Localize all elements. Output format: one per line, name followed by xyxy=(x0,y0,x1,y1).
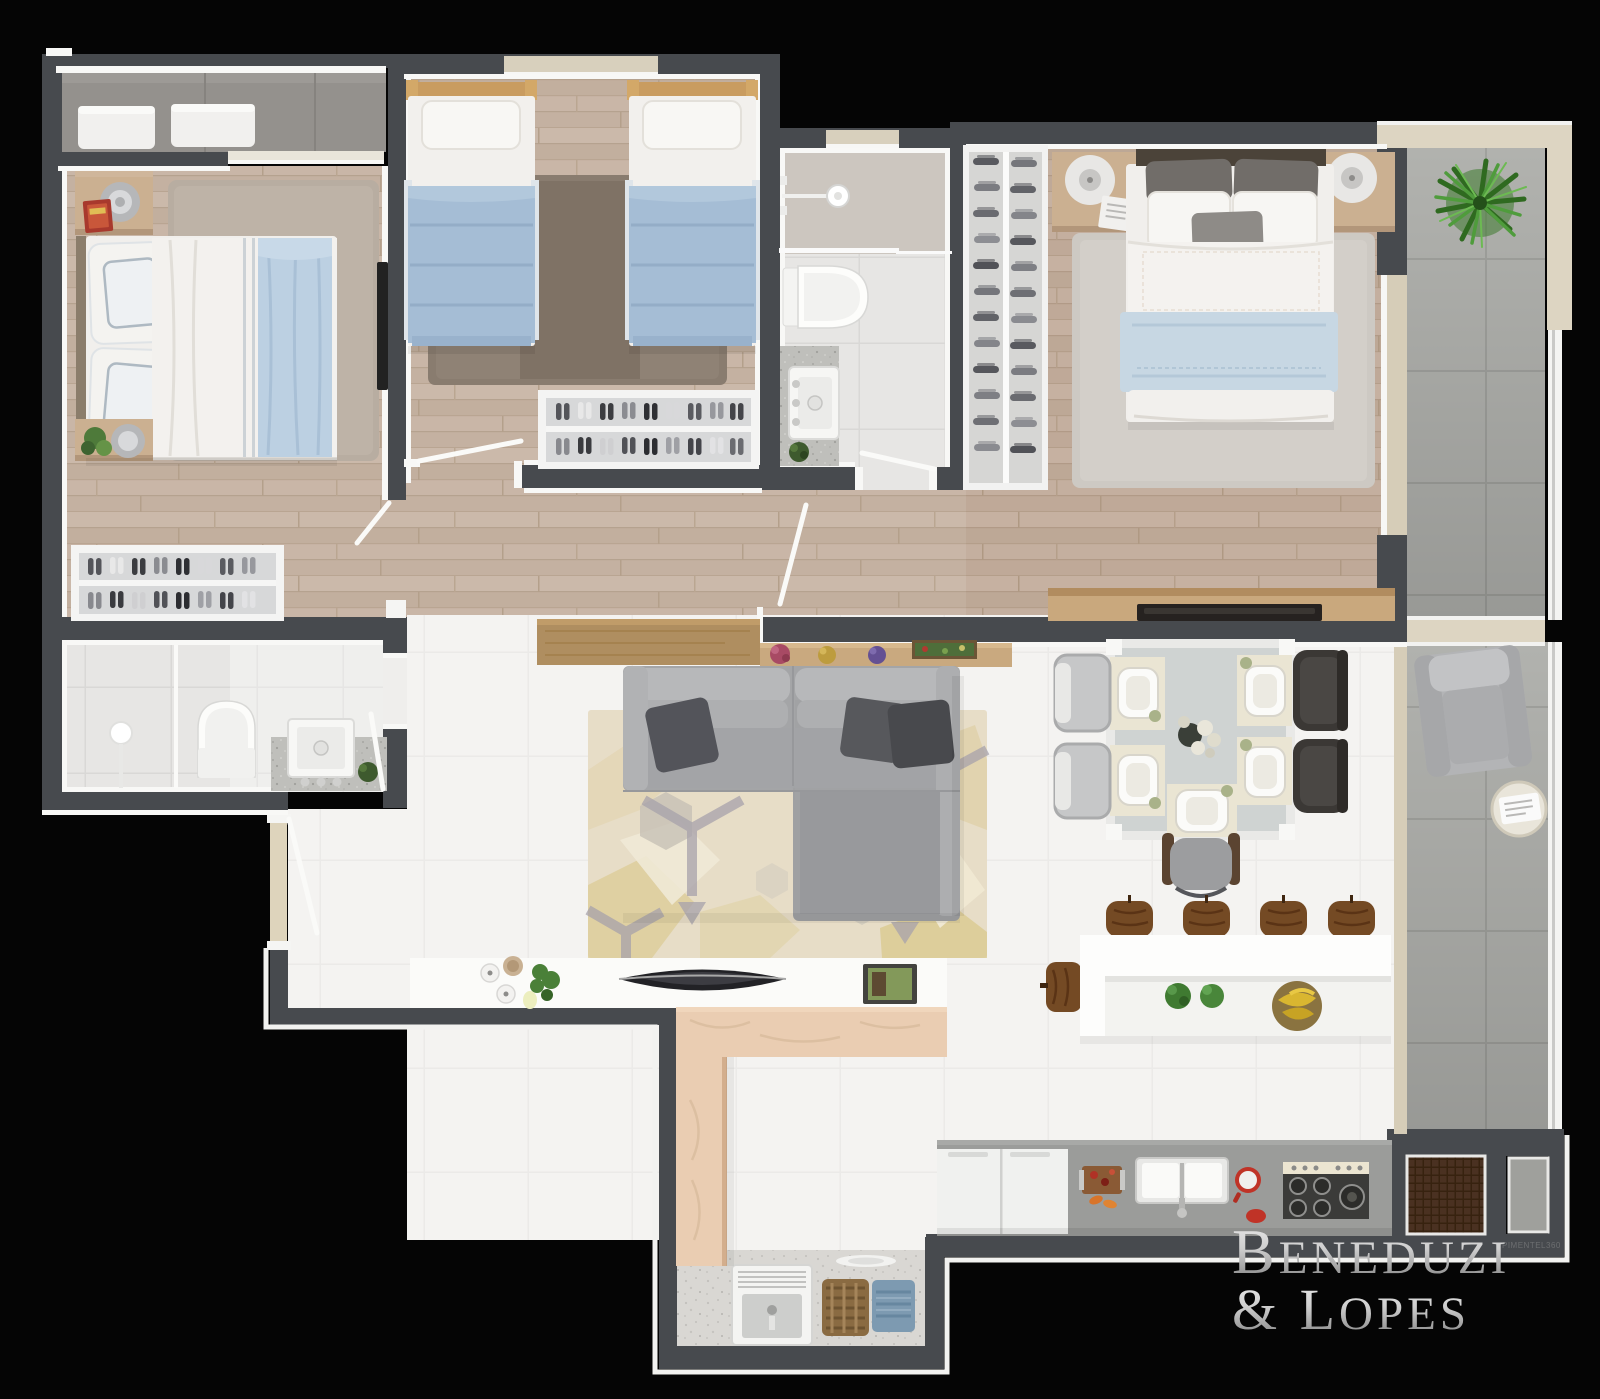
svg-text:PIMENTEL360: PIMENTEL360 xyxy=(1502,1241,1561,1250)
